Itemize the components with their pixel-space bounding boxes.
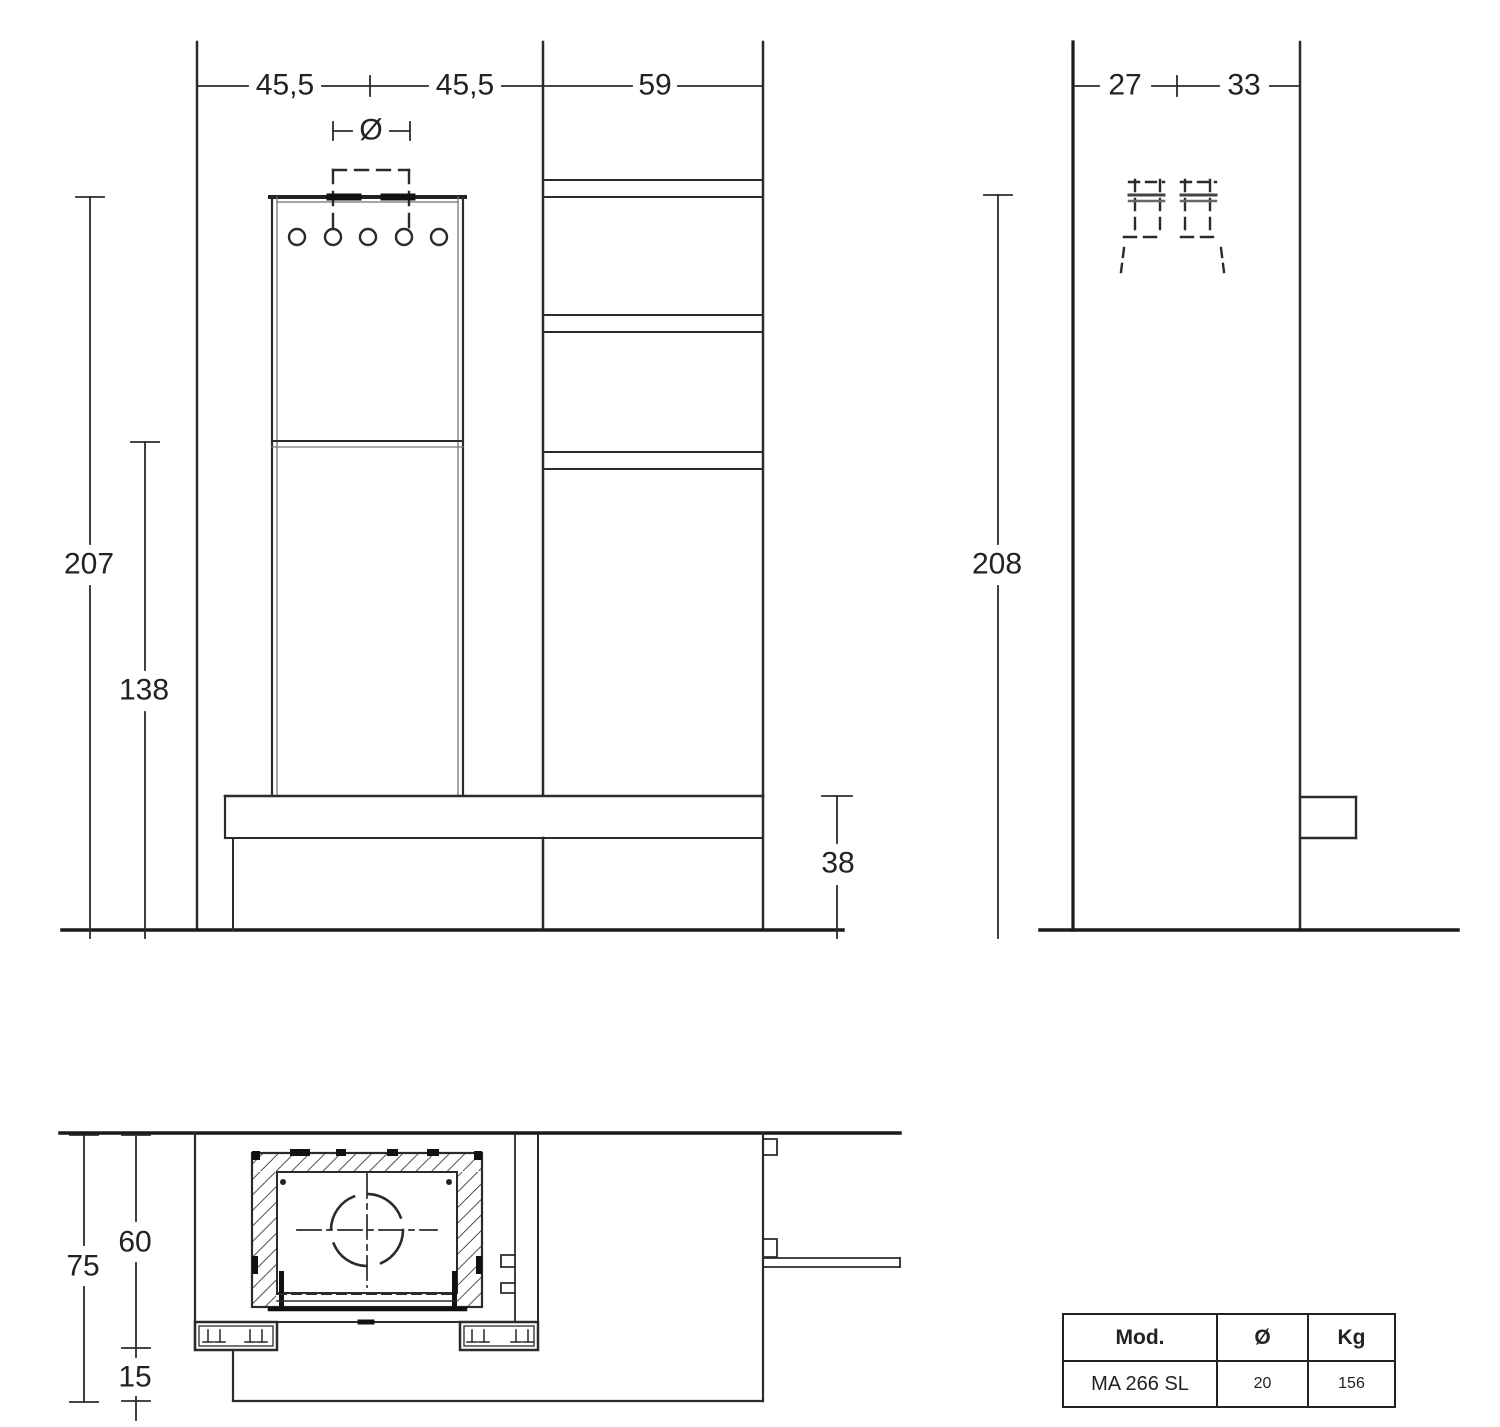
dim-depth-bench-label: 15 bbox=[118, 1361, 151, 1394]
dim-side-height-total-label: 208 bbox=[972, 548, 1022, 581]
plan-view: 75 60 15 bbox=[60, 1133, 900, 1420]
hood-vent-holes bbox=[289, 229, 447, 245]
dim-depth-front-label: 27 bbox=[1108, 69, 1141, 102]
side-dimensions bbox=[984, 76, 1300, 938]
fireplace-technical-drawing: 45,5 45,5 59 Ø 207 138 38 bbox=[0, 0, 1500, 1427]
flue-pipe-side-hidden bbox=[1121, 180, 1224, 272]
flue-diameter-symbol: Ø bbox=[359, 114, 382, 147]
firebox-bolt-left bbox=[280, 1179, 286, 1185]
spec-header-diameter: Ø bbox=[1217, 1314, 1308, 1361]
hood-outline bbox=[270, 197, 465, 795]
dim-depth-back-label: 33 bbox=[1227, 69, 1260, 102]
side-bench-profile bbox=[1300, 797, 1356, 838]
firebox-bolt-right bbox=[446, 1179, 452, 1185]
spec-table: Mod. Ø Kg MA 266 SL 20 156 bbox=[1062, 1313, 1396, 1408]
drawing-canvas: 45,5 45,5 59 Ø 207 138 38 bbox=[0, 0, 1500, 1427]
dim-width-left-label: 45,5 bbox=[256, 69, 314, 102]
dim-width-right-label: 45,5 bbox=[436, 69, 494, 102]
front-view: 45,5 45,5 59 Ø 207 138 38 bbox=[62, 42, 855, 938]
plan-flue-circle bbox=[297, 1174, 437, 1287]
dim-height-total-label: 207 bbox=[64, 548, 114, 581]
bench-outline bbox=[225, 796, 763, 930]
plan-bench-lines bbox=[763, 1258, 900, 1267]
right-column-strips bbox=[543, 180, 763, 469]
spec-header-model: Mod. bbox=[1063, 1314, 1217, 1361]
spec-table-data-row: MA 266 SL 20 156 bbox=[1063, 1361, 1395, 1407]
side-view: 27 33 208 bbox=[972, 42, 1458, 938]
spec-value-weight: 156 bbox=[1308, 1361, 1395, 1407]
spec-value-model: MA 266 SL bbox=[1063, 1361, 1217, 1407]
dim-depth-total-label: 75 bbox=[66, 1250, 99, 1283]
dim-bench-height-label: 38 bbox=[821, 847, 854, 880]
spec-value-diameter: 20 bbox=[1217, 1361, 1308, 1407]
spec-header-weight: Kg bbox=[1308, 1314, 1395, 1361]
spec-table-header-row: Mod. Ø Kg bbox=[1063, 1314, 1395, 1361]
dim-height-shelf-label: 138 bbox=[119, 674, 169, 707]
plan-foot-blocks bbox=[195, 1322, 538, 1350]
dim-depth-niche-label: 60 bbox=[118, 1226, 151, 1259]
plan-edge-brackets bbox=[501, 1139, 777, 1293]
dim-width-column-label: 59 bbox=[638, 69, 671, 102]
